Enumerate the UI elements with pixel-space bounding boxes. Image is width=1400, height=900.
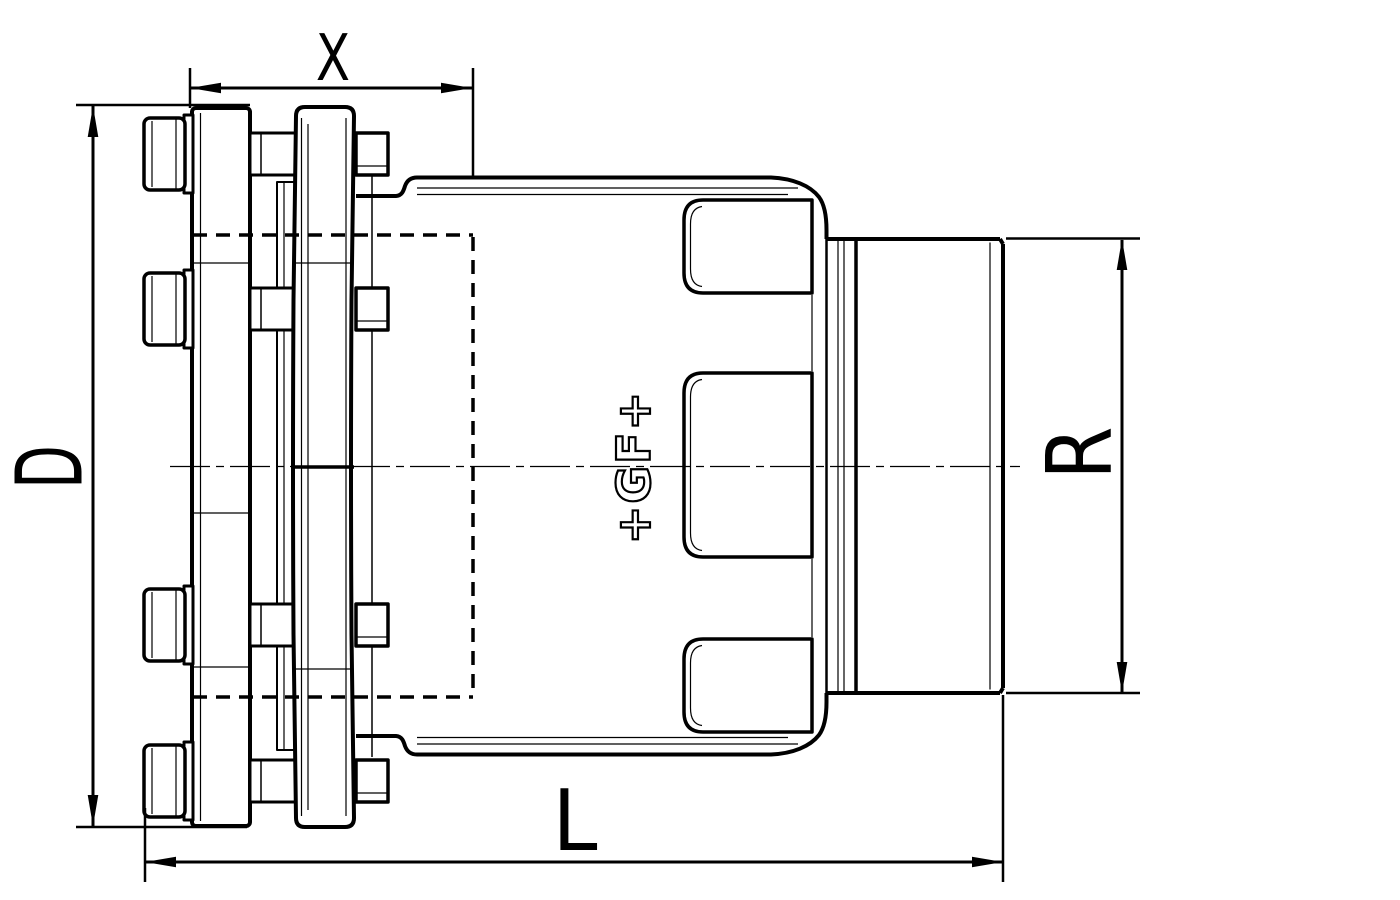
technical-drawing-page: X D R L +GF+ [0,0,1400,900]
bolt-shank [250,604,296,646]
bolt-shank [250,760,296,802]
bolt-head [144,589,185,661]
dimension-label-x: X [316,21,350,96]
spigot-chamfer [1000,688,1003,693]
arrowhead-left-icon [190,83,221,94]
arrowhead-up-icon [88,106,99,137]
rib-bottom [684,639,812,732]
bolt-nut-3 [356,604,388,646]
dimension-label-l: L [553,771,598,870]
rib-top [684,200,812,293]
bolt-nut-4 [356,760,388,802]
bolt-head [144,273,185,345]
arrowhead-left-icon [145,857,176,868]
bolt-nut-2 [356,288,388,330]
dimension-r: R [1006,239,1140,694]
bolt-shank [250,288,296,330]
bolt-shank [250,133,296,175]
arrowhead-down-icon [1117,662,1128,693]
dimension-label-d: D [0,445,104,489]
arrowhead-right-icon [441,83,472,94]
coupling-part [144,107,1003,827]
dimension-label-r: R [1027,426,1133,479]
bolt-head [144,745,185,817]
gf-brand-logo: +GF+ [607,390,661,544]
rib-middle [684,373,812,557]
arrowhead-up-icon [1117,239,1128,270]
bolt-head [144,118,185,190]
coupling-cross-section-drawing: X D R L +GF+ [0,0,1400,900]
arrowhead-right-icon [972,857,1003,868]
spigot-chamfer [1000,239,1003,244]
bolt-nut-1 [356,133,388,175]
arrowhead-down-icon [88,795,99,826]
